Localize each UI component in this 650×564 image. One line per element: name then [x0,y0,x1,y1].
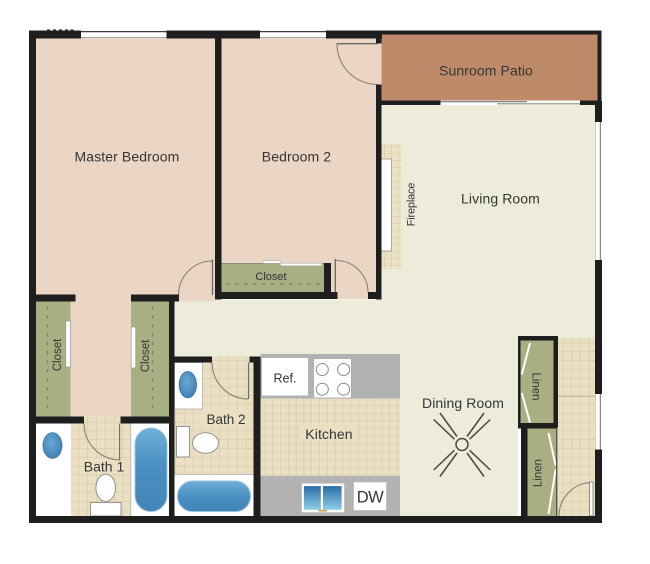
svg-text:Bath 1: Bath 1 [84,459,125,475]
svg-text:Sunroom Patio: Sunroom Patio [439,63,533,79]
svg-text:Closet: Closet [140,339,152,372]
svg-text:Bedroom 2: Bedroom 2 [262,149,331,165]
svg-text:Bath 2: Bath 2 [206,412,245,427]
svg-text:Kitchen: Kitchen [305,426,352,442]
svg-text:Closet: Closet [52,338,64,371]
svg-text:Fireplace: Fireplace [406,183,418,227]
svg-text:Closet: Closet [255,271,286,283]
svg-text:Ref.: Ref. [274,372,297,386]
svg-text:Linen: Linen [533,459,545,487]
svg-text:DW: DW [357,489,384,507]
svg-text:Linen: Linen [530,372,542,400]
svg-text:Master Bedroom: Master Bedroom [75,149,180,165]
svg-text:Living Room: Living Room [461,191,540,207]
svg-text:Dining Room: Dining Room [422,395,504,411]
